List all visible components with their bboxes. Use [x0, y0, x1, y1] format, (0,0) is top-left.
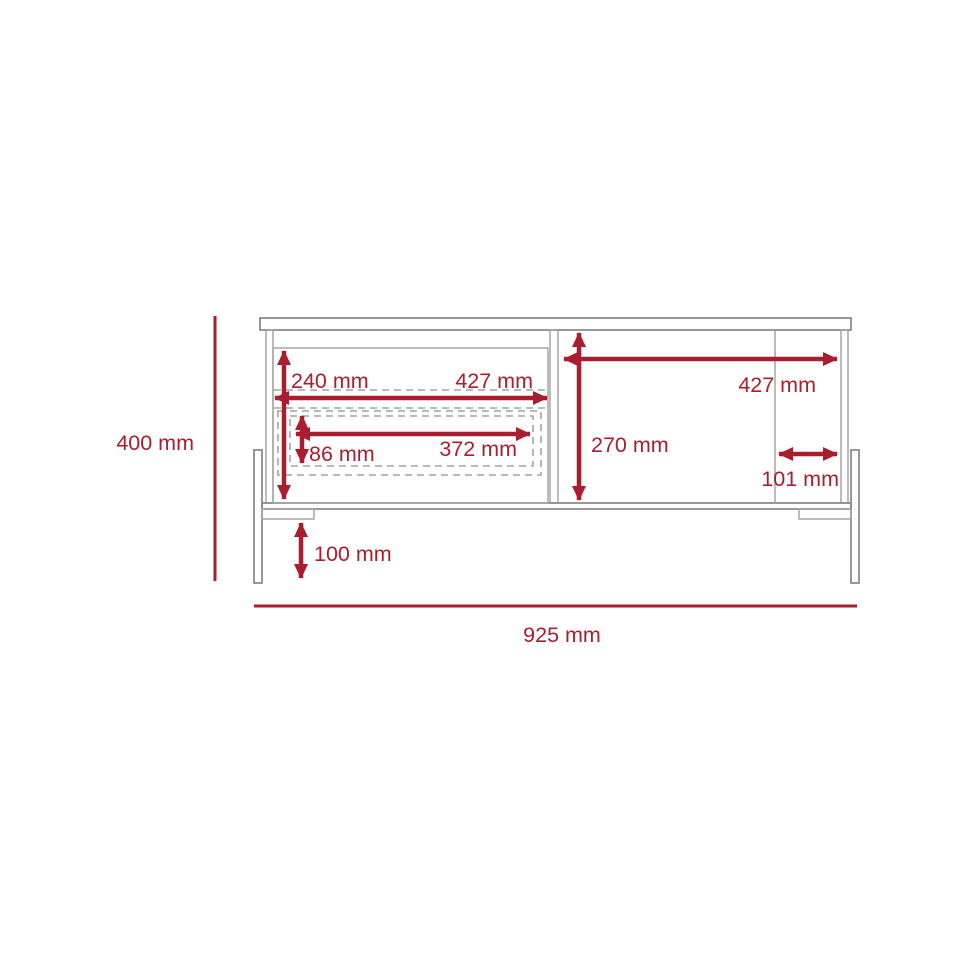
right-side-panel — [841, 330, 848, 503]
dim-label-right-compartment-height: 270 mm — [591, 433, 669, 457]
dim-label-drawer-inner-height: 86 mm — [309, 442, 375, 466]
dim-label-overall-width: 925 mm — [523, 623, 601, 647]
right-foot-bracket — [799, 509, 851, 519]
dimension-diagram: 400 mm 240 mm 427 mm 86 mm 372 mm 270 mm… — [0, 0, 960, 960]
right-leg — [851, 450, 859, 583]
dim-label-left-compartment-width: 427 mm — [455, 369, 533, 393]
top-panel — [260, 318, 851, 330]
dim-label-drawer-front-height: 240 mm — [291, 369, 369, 393]
bottom-panel — [262, 503, 851, 509]
dim-label-drawer-inner-width: 372 mm — [439, 437, 517, 461]
left-foot-bracket — [262, 509, 314, 519]
dim-label-leg-clearance: 100 mm — [314, 542, 392, 566]
diagram-svg: 400 mm 240 mm 427 mm 86 mm 372 mm 270 mm… — [0, 0, 960, 960]
left-side-panel — [266, 330, 273, 503]
left-leg — [254, 450, 262, 583]
divider-panel — [550, 330, 558, 503]
dim-label-right-compartment-width: 427 mm — [738, 373, 816, 397]
dim-label-overall-height: 400 mm — [116, 431, 194, 455]
dim-label-right-inset: 101 mm — [761, 467, 839, 491]
